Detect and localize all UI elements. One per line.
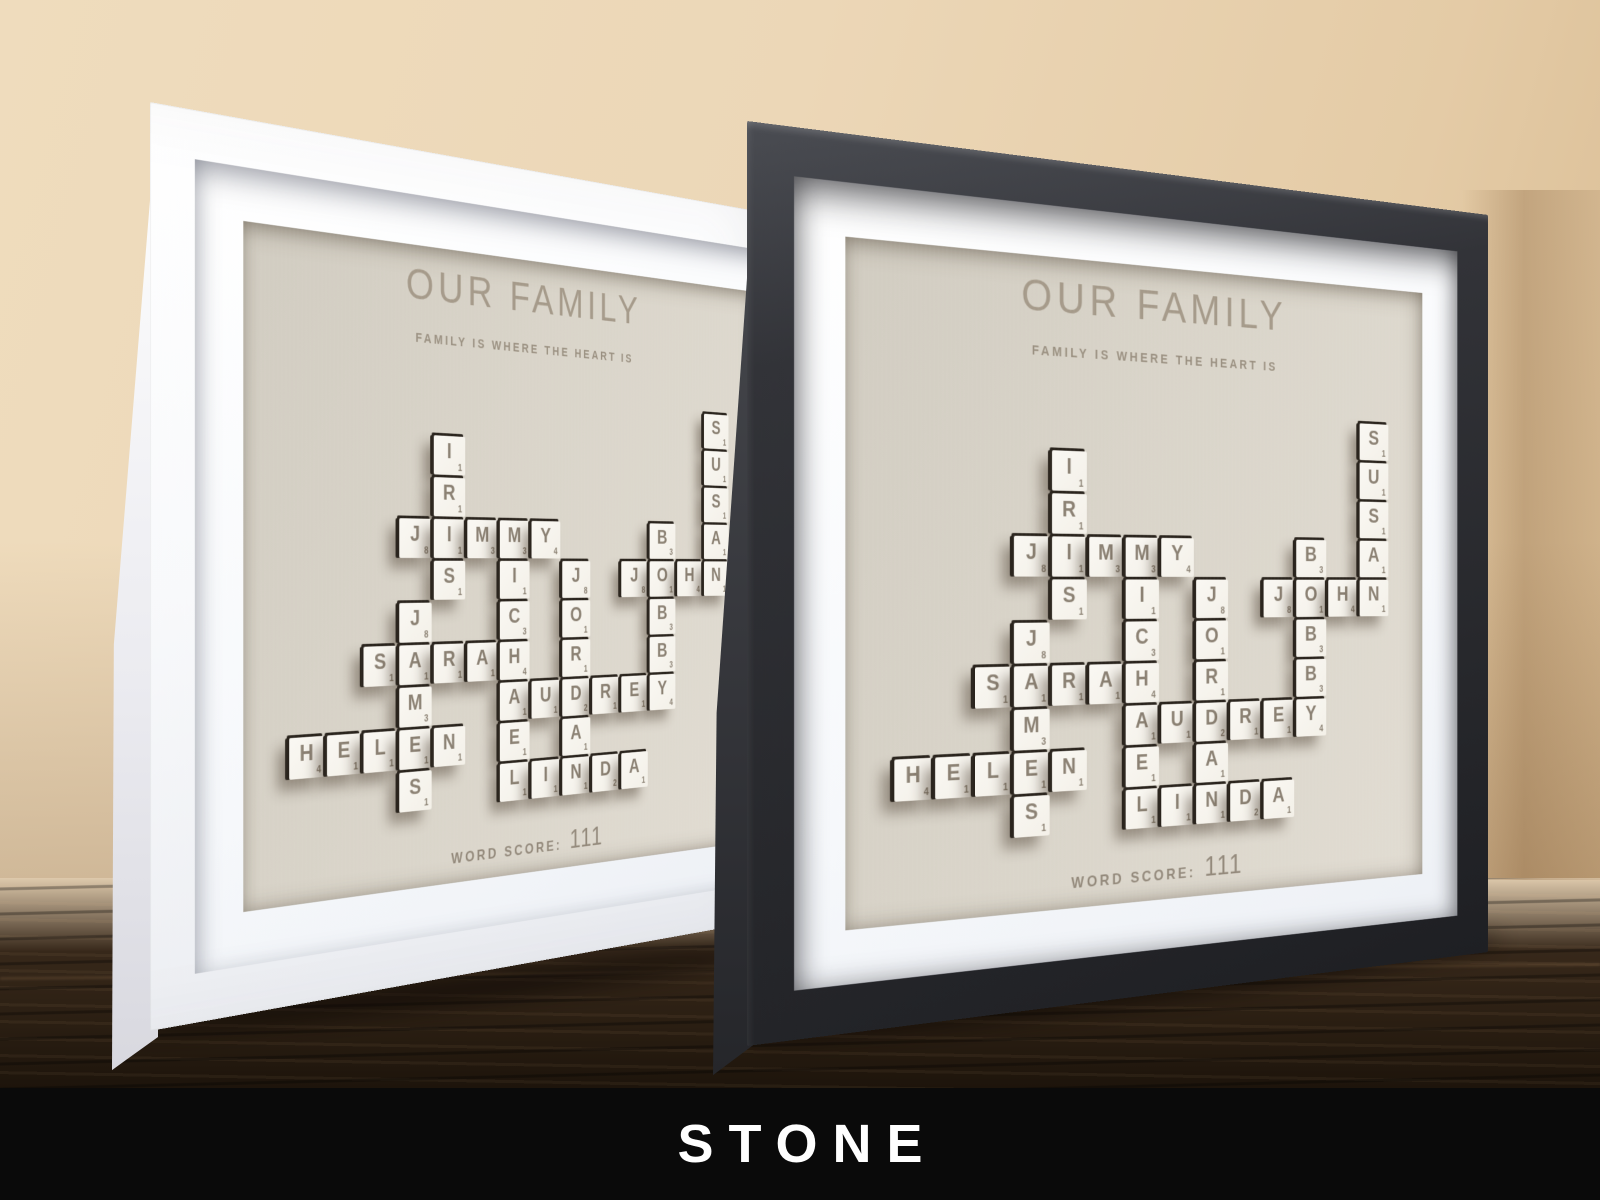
tile-point-value: 1 [523, 707, 527, 718]
tile-letter: R [1052, 668, 1087, 695]
scrabble-tile-r: R1 [562, 639, 590, 677]
tile-point-value: 4 [1151, 690, 1155, 701]
tile-point-value: 1 [1221, 647, 1225, 658]
tile-point-value: 8 [1041, 650, 1046, 661]
tile-point-value: 1 [1151, 731, 1155, 742]
scrabble-tile-i: I1 [1161, 786, 1194, 827]
black-frame-mat: OUR FAMILY FAMILY IS WHERE THE HEART IS … [794, 176, 1457, 990]
scrabble-tile-s: S1 [1359, 502, 1388, 539]
tile-letter: J [1196, 583, 1228, 608]
tile-letter: M [500, 524, 530, 548]
scrabble-tile-s: S1 [399, 770, 431, 813]
tile-letter: C [500, 604, 530, 629]
scrabble-tile-h: H4 [894, 758, 932, 802]
scrabble-tile-j: J8 [1196, 580, 1228, 619]
tile-letter: H [1328, 583, 1357, 607]
tile-letter: N [1359, 583, 1388, 606]
tile-point-value: 8 [1041, 564, 1046, 575]
scrabble-tile-e: E1 [1263, 700, 1294, 739]
tile-point-value: 1 [458, 504, 462, 515]
tile-point-value: 3 [1041, 736, 1046, 747]
scrabble-tile-r: R1 [592, 677, 619, 715]
scrabble-tile-l: L1 [975, 754, 1011, 797]
tile-letter: B [1296, 623, 1326, 647]
tile-point-value: 4 [669, 698, 672, 708]
tile-point-value: 8 [424, 629, 428, 640]
scrabble-tile-e: E1 [327, 733, 361, 776]
scrabble-tile-h: H4 [677, 561, 702, 596]
tile-point-value: 3 [1151, 564, 1155, 575]
tile-point-value: 1 [1287, 725, 1291, 735]
scrabble-tile-s: S1 [433, 561, 464, 600]
scrabble-tile-a: A1 [500, 681, 530, 721]
tile-point-value: 3 [1319, 645, 1323, 655]
scrabble-tile-n: N1 [562, 756, 590, 795]
tile-letter: I [433, 439, 464, 465]
tile-letter: U [704, 454, 729, 477]
tile-point-value: 3 [669, 548, 672, 558]
tile-point-value: 1 [1079, 564, 1084, 575]
scrabble-tile-e: E1 [1125, 746, 1158, 787]
scrabble-tile-a: A1 [1125, 705, 1158, 746]
tile-point-value: 1 [1151, 815, 1155, 826]
scrabble-tile-i: I1 [1052, 450, 1087, 491]
tile-point-value: 1 [1079, 777, 1084, 788]
scrabble-tile-n: N1 [1359, 580, 1388, 617]
tile-point-value: 1 [1041, 823, 1046, 834]
scrabble-tile-s: S1 [1359, 423, 1388, 461]
scrabble-tile-j: J8 [1014, 622, 1050, 663]
tile-point-value: 4 [316, 764, 321, 776]
tile-point-value: 1 [1151, 606, 1155, 617]
scrabble-tile-d: D2 [1230, 782, 1261, 822]
tile-letter: I [1052, 540, 1087, 566]
tile-point-value: 1 [584, 742, 588, 752]
scrabble-tile-n: N1 [1052, 750, 1087, 792]
tile-letter: J [1014, 626, 1050, 652]
scrabble-tile-e: E1 [399, 728, 431, 770]
scrabble-tile-s: S1 [363, 646, 396, 687]
tile-point-value: 1 [523, 587, 527, 597]
tile-point-value: 2 [584, 703, 588, 713]
scrabble-tile-n: N1 [433, 726, 464, 767]
scrabble-tile-u: U1 [1359, 462, 1388, 499]
tile-point-value: 1 [1382, 449, 1386, 459]
scrabble-tile-b: B3 [649, 599, 675, 635]
tile-point-value: 4 [696, 585, 699, 594]
tile-point-value: 3 [669, 623, 672, 633]
scrabble-tile-a: A1 [399, 644, 431, 685]
tile-point-value: 1 [389, 673, 393, 684]
tile-letter: A [704, 528, 729, 550]
scrabble-tile-l: L1 [500, 761, 530, 802]
scrabble-tile-l: L1 [363, 731, 396, 774]
tile-letter: R [433, 481, 464, 507]
word-score-value: 111 [570, 821, 604, 854]
tile-letter: Y [1161, 541, 1194, 566]
tile-point-value: 4 [1186, 565, 1190, 576]
scrabble-tile-i: I1 [433, 519, 464, 558]
scrabble-tile-s: S1 [1014, 795, 1050, 838]
scrabble-tile-j: J8 [621, 561, 648, 597]
scrabble-tile-j: J8 [1263, 580, 1294, 618]
tile-point-value: 3 [523, 627, 527, 637]
tile-letter: M [1125, 541, 1158, 566]
scrabble-tile-a: A1 [1263, 779, 1294, 819]
tile-point-value: 1 [723, 475, 726, 484]
tile-point-value: 1 [458, 587, 462, 598]
scrabble-tile-o: O1 [1196, 620, 1228, 659]
tile-point-value: 1 [458, 752, 462, 763]
scrabble-tile-d: D2 [592, 753, 619, 792]
scrabble-tile-e: E1 [935, 756, 972, 800]
scrabble-tile-y: Y4 [649, 674, 675, 711]
tile-point-value: 3 [424, 713, 428, 724]
tile-point-value: 1 [1079, 692, 1084, 703]
tile-point-value: 1 [584, 664, 588, 674]
tile-point-value: 1 [642, 699, 645, 709]
scrabble-tile-d: D2 [562, 678, 590, 716]
tile-letter: J [399, 522, 431, 548]
tile-point-value: 1 [964, 784, 969, 796]
tile-point-value: 4 [1319, 724, 1323, 734]
scrabble-tile-h: H4 [500, 641, 530, 680]
scrabble-tile-a: A1 [704, 524, 729, 559]
tile-letter: O [562, 603, 590, 627]
tile-letter: B [649, 527, 675, 550]
scrabble-tile-s: S1 [1052, 579, 1087, 619]
tile-letter: O [1296, 583, 1326, 607]
tile-point-value: 3 [491, 546, 495, 556]
tile-point-value: 1 [554, 784, 558, 795]
scrabble-tile-a: A1 [621, 751, 648, 789]
tile-point-value: 1 [523, 747, 527, 758]
scrabble-tile-b: B3 [1296, 619, 1326, 657]
tile-letter: O [1196, 624, 1228, 649]
scrabble-tile-d: D2 [1196, 702, 1228, 742]
tile-letter: S [1359, 505, 1388, 529]
tile-point-value: 8 [1287, 605, 1291, 615]
scrabble-tile-a: A1 [562, 717, 590, 756]
scrabble-tile-h: H4 [289, 736, 324, 780]
tile-letter: B [1296, 543, 1326, 567]
tile-point-value: 1 [1254, 727, 1258, 738]
word-score-value: 111 [1205, 848, 1243, 882]
tile-letter: U [1359, 466, 1388, 490]
scrabble-tile-r: R1 [433, 643, 464, 683]
tile-letter: S [1359, 427, 1388, 452]
tile-point-value: 1 [424, 671, 428, 682]
scrabble-tile-r: R1 [433, 477, 464, 517]
tile-letter: R [1052, 497, 1087, 523]
scrabble-tile-n: N1 [1196, 784, 1228, 825]
tile-point-value: 1 [723, 438, 726, 448]
scrabble-tile-s: S1 [975, 667, 1011, 709]
scrabble-tile-j: J8 [399, 518, 431, 558]
black-frame-front: OUR FAMILY FAMILY IS WHERE THE HEART IS … [747, 121, 1488, 1046]
white-frame-mat: OUR FAMILY FAMILY IS WHERE THE HEART IS … [195, 159, 787, 974]
tile-point-value: 1 [723, 548, 726, 557]
tile-letter: S [975, 670, 1011, 697]
word-score-label: WORD SCORE: [1071, 864, 1195, 892]
tile-letter: J [562, 564, 590, 588]
tile-point-value: 1 [523, 787, 527, 798]
tile-point-value: 2 [1254, 807, 1258, 818]
tile-point-value: 1 [584, 625, 588, 635]
tile-point-value: 1 [1382, 566, 1386, 576]
tile-letter: S [704, 417, 729, 441]
scrabble-tile-u: U1 [1161, 703, 1194, 743]
art-panel: OUR FAMILY FAMILY IS WHERE THE HEART IS … [845, 237, 1422, 931]
scrabble-tile-n: N1 [704, 561, 729, 596]
tile-letter: A [1089, 667, 1123, 693]
tile-point-value: 1 [1221, 810, 1225, 821]
tile-point-value: 1 [1151, 773, 1155, 784]
tile-point-value: 1 [1115, 691, 1119, 702]
tile-letter: H [677, 565, 702, 587]
tile-letter: I [1052, 454, 1087, 481]
art-panel: OUR FAMILY FAMILY IS WHERE THE HEART IS … [243, 221, 757, 912]
scrabble-tile-s: S1 [704, 488, 729, 523]
tile-point-value: 1 [1003, 782, 1008, 793]
tile-letter: M [467, 523, 498, 548]
scrabble-tile-i: I1 [1125, 579, 1158, 618]
scrabble-tile-r: R1 [1196, 661, 1228, 700]
tile-letter: I [500, 564, 530, 588]
tile-point-value: 1 [1382, 527, 1386, 537]
tile-letter: S [1052, 583, 1087, 609]
tile-letter: H [1125, 666, 1158, 692]
scrabble-tile-j: J8 [399, 603, 431, 643]
scrabble-tile-s: S1 [704, 414, 729, 450]
scrabble-tile-e: E1 [1014, 752, 1050, 795]
tile-letter: R [1196, 665, 1228, 690]
tile-point-value: 1 [424, 797, 428, 808]
scrabble-tile-r: R1 [1052, 665, 1087, 706]
tile-point-value: 8 [642, 585, 645, 595]
tile-letter: B [1296, 662, 1326, 687]
tile-letter: J [399, 606, 431, 632]
scrabble-tile-a: A1 [1359, 541, 1388, 578]
scrabble-tile-m: M3 [1089, 537, 1123, 577]
tile-point-value: 4 [523, 667, 527, 677]
scrabble-tile-c: C3 [500, 601, 530, 640]
tile-point-value: 1 [584, 781, 588, 791]
scrabble-tile-y: Y4 [1296, 698, 1326, 737]
tile-point-value: 3 [1319, 565, 1323, 575]
tile-point-value: 2 [613, 778, 617, 788]
scrabble-tile-i: I1 [531, 759, 560, 799]
tile-letter: A [1014, 669, 1050, 696]
tile-point-value: 1 [1221, 687, 1225, 698]
tile-point-value: 1 [1382, 605, 1386, 615]
tile-letter: Y [531, 524, 560, 548]
scrabble-tile-u: U1 [704, 451, 729, 487]
tile-point-value: 4 [1351, 605, 1355, 615]
scrabble-tile-h: H4 [1328, 580, 1357, 617]
scrabble-tile-e: E1 [500, 721, 530, 761]
tile-letter: A [1359, 544, 1388, 567]
scrabble-tile-y: Y4 [531, 521, 560, 559]
scrabble-tile-o: O1 [1296, 580, 1326, 617]
scrabble-tile-c: C3 [1125, 621, 1158, 661]
scrabble-tile-i: I1 [1052, 536, 1087, 576]
scrabble-tile-m: M3 [500, 520, 530, 558]
scrabble-tile-m: M3 [1125, 537, 1158, 577]
scrabble-tile-l: L1 [1125, 788, 1158, 830]
tile-point-value: 8 [424, 545, 428, 556]
tile-letter: C [1125, 625, 1158, 651]
tile-point-value: 1 [458, 546, 462, 557]
word-score-label: WORD SCORE: [451, 837, 562, 868]
tile-point-value: 1 [1041, 693, 1046, 704]
tile-point-value: 3 [523, 546, 527, 556]
scrabble-tile-i: I1 [500, 561, 530, 599]
tile-letter: S [704, 491, 729, 514]
tile-letter: I [1125, 583, 1158, 608]
tile-point-value: 1 [1382, 488, 1386, 498]
tile-point-value: 1 [424, 755, 428, 766]
scrabble-tile-a: A1 [1014, 666, 1050, 708]
tile-point-value: 1 [1287, 805, 1291, 816]
tile-point-value: 1 [1186, 730, 1190, 741]
scrabble-tile-a: A1 [1196, 743, 1228, 783]
tile-point-value: 2 [1221, 728, 1225, 739]
tile-point-value: 3 [669, 660, 672, 670]
scrabble-tile-a: A1 [467, 642, 498, 682]
tile-point-value: 1 [458, 670, 462, 681]
scrabble-crossword: S1I1U1R1S1J8I1M3M3Y4B3A1S1I1J8J8O1H4N1J8… [894, 399, 1388, 850]
tile-point-value: 1 [1079, 607, 1084, 618]
tile-letter: S [433, 564, 464, 589]
tile-point-value: 1 [1186, 812, 1190, 823]
tile-point-value: 3 [1151, 648, 1155, 659]
scrabble-tile-b: B3 [649, 636, 675, 672]
tile-point-value: 1 [642, 775, 645, 785]
scrabble-tile-y: Y4 [1161, 538, 1194, 577]
scrabble-tile-j: J8 [1014, 536, 1050, 577]
tile-point-value: 1 [458, 463, 462, 474]
tile-point-value: 1 [1079, 521, 1084, 532]
tile-point-value: 1 [1079, 479, 1084, 490]
tile-point-value: 1 [353, 761, 358, 772]
scrabble-tile-b: B3 [1296, 540, 1326, 577]
tile-point-value: 1 [554, 705, 558, 715]
tile-point-value: 1 [1041, 779, 1046, 790]
scrabble-tile-m: M3 [467, 520, 498, 559]
scrabble-tile-r: R1 [1052, 493, 1087, 534]
scrabble-tile-u: U1 [531, 680, 560, 719]
tile-point-value: 1 [723, 512, 726, 521]
tile-letter: O [649, 564, 675, 587]
tile-point-value: 3 [1115, 564, 1119, 575]
banner-label: STONE [662, 1113, 937, 1175]
scrabble-tile-m: M3 [399, 686, 431, 727]
scrabble-tile-i: I1 [433, 435, 464, 475]
scrabble-tile-o: O1 [649, 561, 675, 596]
tile-point-value: 8 [1221, 606, 1225, 616]
white-frame-front: OUR FAMILY FAMILY IS WHERE THE HEART IS … [150, 102, 812, 1031]
scrabble-tile-o: O1 [562, 600, 590, 637]
tile-letter: I [433, 522, 464, 547]
tile-point-value: 1 [669, 585, 672, 595]
tile-point-value: 8 [584, 586, 588, 596]
tile-point-value: 1 [613, 701, 617, 711]
scrabble-tile-h: H4 [1125, 663, 1158, 703]
tile-point-value: 1 [491, 668, 495, 679]
tile-point-value: 1 [1003, 694, 1008, 705]
scrabble-tile-b: B3 [649, 523, 675, 559]
tile-point-value: 1 [1319, 605, 1323, 615]
tile-point-value: 1 [1221, 769, 1225, 780]
brand-banner: STONE [0, 1088, 1600, 1200]
tile-point-value: 4 [554, 547, 558, 557]
scrabble-tile-e: E1 [621, 675, 648, 712]
tile-point-value: 3 [1319, 684, 1323, 694]
scrabble-tile-j: J8 [562, 561, 590, 598]
scene: OUR FAMILY FAMILY IS WHERE THE HEART IS … [0, 0, 1600, 1200]
tile-letter: J [1014, 539, 1050, 565]
scrabble-tile-a: A1 [1089, 664, 1123, 705]
tile-letter: J [1263, 583, 1294, 607]
scrabble-tile-m: M3 [1014, 709, 1050, 751]
scrabble-crossword: S1I1U1R1S1J8I1M3M3Y4B3A1S1I1J8J8O1H4N1J8… [289, 382, 728, 827]
tile-letter: J [621, 564, 648, 587]
tile-letter: N [704, 565, 729, 587]
tile-letter: B [649, 602, 675, 625]
tile-point-value: 4 [924, 786, 929, 798]
tile-point-value: 1 [389, 758, 393, 769]
tile-letter: M [1089, 540, 1123, 566]
scrabble-tile-r: R1 [1230, 701, 1261, 740]
scrabble-tile-b: B3 [1296, 659, 1326, 697]
